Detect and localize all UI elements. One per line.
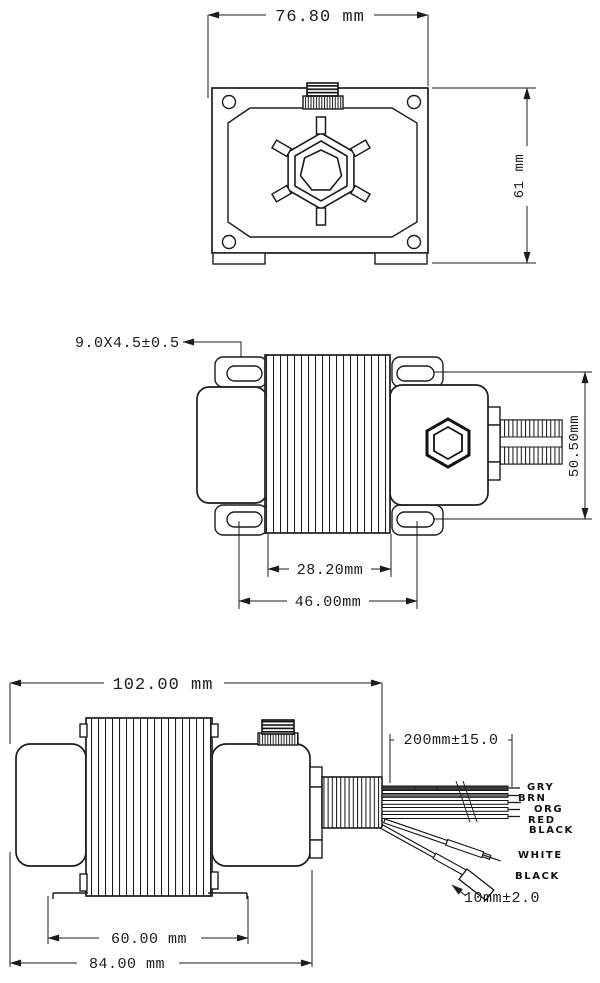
bracket-slot bbox=[227, 512, 262, 527]
slot-dim-text: 9.0X4.5±0.5 bbox=[75, 335, 180, 352]
gland-boss-front bbox=[310, 767, 322, 858]
technical-drawing-canvas: 76.80 mm bbox=[0, 0, 600, 983]
dim-text-top-height: 61 mm bbox=[512, 154, 528, 199]
wire-org bbox=[382, 801, 508, 805]
end-bell-left bbox=[197, 387, 267, 503]
lamination-clip bbox=[80, 724, 87, 737]
dim-text-lead-length: 200mm±15.0 bbox=[403, 732, 498, 749]
mounting-foot bbox=[375, 253, 427, 264]
wire-label-brn: BRN bbox=[518, 793, 547, 804]
dim-text-overall-length: 102.00 mm bbox=[113, 676, 214, 695]
lamination-stack-front bbox=[86, 718, 212, 896]
corner-hole bbox=[223, 96, 236, 109]
wire-label-gry: GRY bbox=[527, 782, 554, 793]
connector-cap bbox=[307, 83, 338, 96]
lamination-stack bbox=[265, 355, 390, 533]
wire-label-org: ORG bbox=[534, 804, 563, 815]
lamination-clip bbox=[211, 872, 218, 889]
bracket-slot bbox=[227, 366, 262, 381]
wire-label-black: BLACK bbox=[529, 825, 574, 836]
corner-hole bbox=[408, 96, 421, 109]
wire-red bbox=[382, 808, 508, 812]
wire-label-black-2: BLACK bbox=[515, 871, 560, 882]
wire-black bbox=[382, 815, 508, 819]
wire-brn bbox=[382, 794, 508, 798]
bracket-slot bbox=[397, 512, 434, 527]
end-bell-left-front bbox=[16, 744, 86, 866]
dim-text-top-width: 76.80 mm bbox=[275, 8, 365, 27]
mounting-foot bbox=[213, 253, 265, 264]
cable-gland-stud bbox=[500, 420, 562, 464]
dim-text-core-width: 28.20mm bbox=[297, 562, 364, 579]
dim-text-body-length: 84.00 mm bbox=[89, 956, 165, 973]
corner-hole bbox=[223, 236, 236, 249]
wire-gry bbox=[382, 786, 508, 791]
corner-hole bbox=[408, 236, 421, 249]
connector-base bbox=[303, 96, 343, 109]
lamination-clip bbox=[80, 874, 87, 891]
strain-relief bbox=[322, 777, 382, 828]
bracket-slot bbox=[397, 366, 434, 381]
dim-text-mount-vertical: 50.50mm bbox=[567, 415, 583, 477]
end-bell-right-front bbox=[212, 744, 310, 866]
dim-text-terminal: 10mm±2.0 bbox=[464, 890, 540, 907]
dim-text-foot-spacing: 60.00 mm bbox=[111, 931, 187, 948]
gland-boss bbox=[487, 407, 500, 480]
lamination-clip bbox=[211, 724, 218, 737]
dim-text-slot-pitch: 46.00mm bbox=[295, 594, 362, 611]
wire-label-white: WHITE bbox=[518, 850, 563, 861]
connector-cap-front bbox=[262, 720, 294, 734]
end-bell-right bbox=[390, 385, 488, 505]
